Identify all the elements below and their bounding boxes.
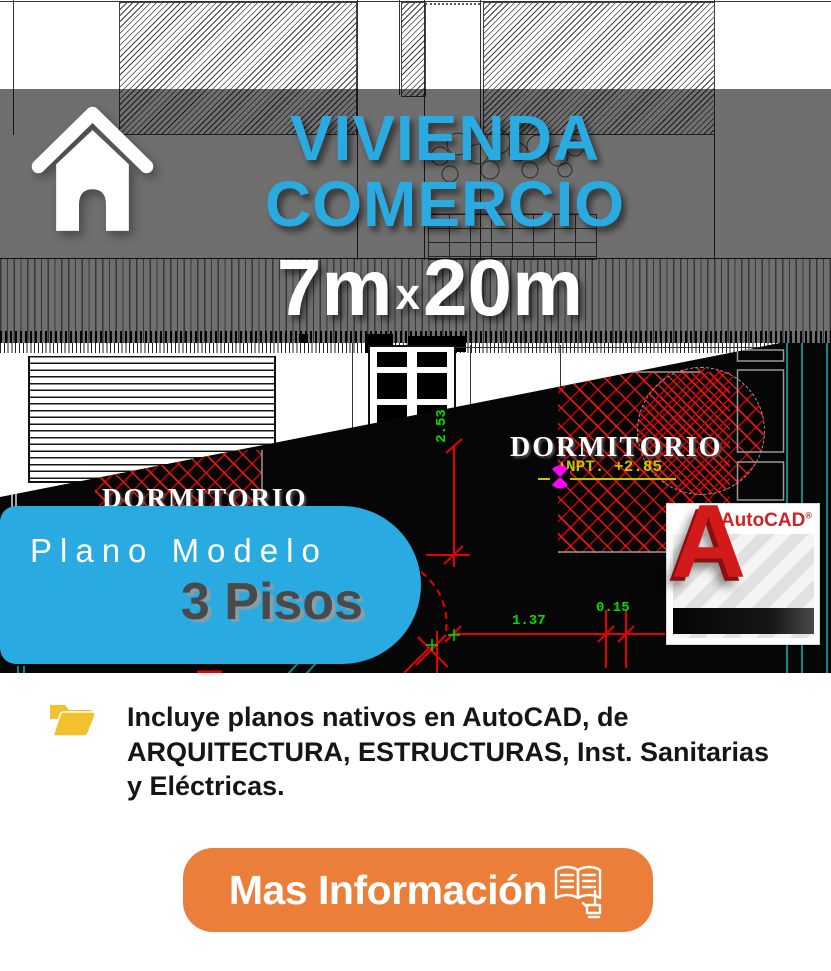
size-value-b: 20m [423,243,583,332]
ribbon-subtitle: 3 Pisos [181,572,363,632]
more-info-label: Mas Información [229,867,547,914]
feature-line3: y Eléctricas. [127,769,827,804]
ribbon-banner: Plano Modelo 3 Pisos [0,506,421,664]
autocad-logo: AutoCAD® A [667,504,819,644]
dimension-width1: 1.37 [512,613,546,629]
floor-level-label: NPT. +2.85 [566,458,662,476]
feature-line1: Incluye planos nativos en AutoCAD, de [127,700,827,735]
headline-size: 7mx20m [215,248,645,328]
autocad-a-letter: A [671,490,746,594]
size-times: x [393,270,423,319]
size-value-a: 7m [277,243,393,332]
registered-mark: ® [805,511,812,521]
promo-poster: VIVIENDA COMERCIO 7mx20m [0,0,831,971]
dimension-height: 2.53 [434,409,450,443]
headline-line2: COMERCIO [215,172,675,236]
ribbon-title: Plano Modelo [30,532,328,570]
drawing-line [425,3,480,5]
dimension-width2: 0.15 [596,600,630,616]
open-book-with-hand-icon [551,861,607,919]
feature-line2: ARQUITECTURA, ESTRUCTURAS, Inst. Sanitar… [127,735,827,770]
more-info-button[interactable]: Mas Información [183,848,653,932]
house-icon [30,100,155,235]
drawing-line [399,0,400,95]
autocad-logo-bar [673,608,814,634]
drawing-line [560,345,561,392]
drawing-line [352,343,353,430]
hatched-wall-block [401,2,426,97]
feature-description: Incluye planos nativos en AutoCAD, de AR… [127,700,827,804]
headline-line1: VIVIENDA [215,106,675,170]
drawing-line [456,347,781,348]
magenta-marker-icon [549,462,571,492]
open-folder-icon [46,697,98,738]
